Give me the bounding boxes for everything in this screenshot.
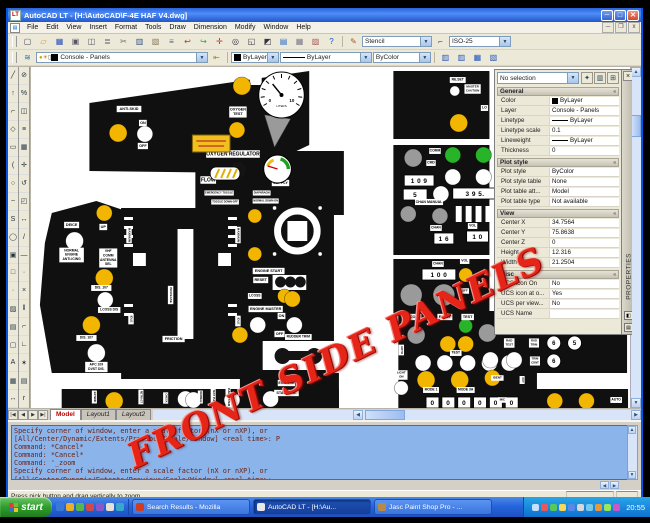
svg-text:TEST: TEST bbox=[505, 342, 513, 346]
save-icon[interactable]: ▦ bbox=[52, 35, 67, 49]
property-row: Center Y75.8638 bbox=[497, 228, 619, 238]
chevron-down-icon[interactable]: ▼ bbox=[420, 37, 431, 46]
svg-text:0: 0 bbox=[462, 400, 466, 407]
draw-spline-icon[interactable]: S bbox=[8, 211, 18, 229]
tab-layout1[interactable]: Layout1 bbox=[81, 409, 116, 420]
modify-fillet-icon[interactable]: ∟ bbox=[19, 336, 29, 354]
screen-edge bbox=[0, 517, 650, 523]
svg-text:CONT: CONT bbox=[531, 360, 539, 364]
svg-text:OFF: OFF bbox=[276, 332, 284, 336]
svg-text:5: 5 bbox=[413, 192, 417, 199]
svg-text:ANTI-SKID: ANTI-SKID bbox=[120, 107, 139, 111]
svg-text:AUTO: AUTO bbox=[611, 398, 621, 402]
window-title: AutoCAD LT - [H:\AutoCAD\F-4E HAF V4.dwg… bbox=[24, 11, 187, 20]
svg-text:1 0: 1 0 bbox=[472, 234, 482, 241]
modify-array-icon[interactable]: ▦ bbox=[19, 139, 29, 157]
section-plot-style[interactable]: Plot style« bbox=[497, 158, 619, 167]
markup-icon[interactable]: ▨ bbox=[308, 35, 323, 49]
dim-style-icon[interactable]: ⌐ bbox=[433, 35, 448, 49]
svg-text:OUT: OUT bbox=[521, 377, 525, 383]
svg-text:0: 0 bbox=[446, 400, 450, 407]
plot-preview-icon[interactable]: ◫ bbox=[84, 35, 99, 49]
svg-text:CHECK: CHECK bbox=[164, 393, 168, 402]
designcenter-icon[interactable]: ▦ bbox=[292, 35, 307, 49]
property-value[interactable]: No bbox=[549, 280, 619, 288]
svg-text:DIS. 107: DIS. 107 bbox=[95, 286, 108, 290]
svg-text:RETRACT: RETRACT bbox=[140, 391, 144, 404]
svg-text:FRICTION: FRICTION bbox=[165, 337, 183, 341]
tray-icon[interactable] bbox=[586, 504, 593, 511]
close-button[interactable]: ✕ bbox=[627, 10, 639, 21]
check-standards-icon[interactable]: ▥ bbox=[454, 51, 469, 65]
quick-select-icon[interactable]: ⊞ bbox=[607, 72, 619, 84]
copy-icon[interactable]: ▥ bbox=[132, 35, 147, 49]
modify-copy-icon[interactable]: % bbox=[19, 85, 29, 103]
svg-text:1 6: 1 6 bbox=[439, 236, 449, 243]
svg-text:ENGAGE: ENGAGE bbox=[278, 381, 295, 385]
svg-text:CAUTION: CAUTION bbox=[466, 88, 479, 92]
scroll-left-icon[interactable]: ◀ bbox=[353, 410, 363, 420]
match-properties-icon[interactable]: ≡ bbox=[164, 35, 179, 49]
doc-minimize-button[interactable]: ─ bbox=[602, 22, 614, 33]
menu-format[interactable]: Format bbox=[111, 24, 141, 31]
zoom-window-icon[interactable]: ◱ bbox=[244, 35, 259, 49]
property-row: Linetype scale0.1 bbox=[497, 126, 619, 136]
draw-rectangle-icon[interactable]: ▭ bbox=[8, 139, 18, 157]
cut-icon[interactable]: ✂ bbox=[116, 35, 131, 49]
modify-stretch-icon[interactable]: ↔ bbox=[19, 211, 29, 229]
draw-insert-block-icon[interactable]: ▣ bbox=[8, 247, 18, 265]
open-icon[interactable]: ▱ bbox=[36, 35, 51, 49]
quick-launch-icon[interactable] bbox=[116, 503, 124, 511]
property-row: LinetypeByLayer bbox=[497, 116, 619, 126]
new-icon[interactable]: ▢ bbox=[20, 35, 35, 49]
title-bar[interactable]: LT AutoCAD LT - [H:\AutoCAD\F-4E HAF V4.… bbox=[8, 8, 641, 22]
svg-text:IDENT: IDENT bbox=[493, 375, 502, 379]
task-icon bbox=[136, 503, 144, 511]
tab-next-button[interactable]: ▶ bbox=[28, 410, 38, 420]
plot-icon[interactable]: ▣ bbox=[68, 35, 83, 49]
redo-icon[interactable]: ↪ bbox=[196, 35, 211, 49]
menu-file[interactable]: File bbox=[23, 24, 42, 31]
modify-break-at-point-icon[interactable]: · bbox=[19, 264, 29, 282]
property-value[interactable]: 0 bbox=[549, 147, 619, 155]
modify-chamfer-icon[interactable]: ⌐ bbox=[19, 318, 29, 336]
chevron-down-icon[interactable]: ▼ bbox=[267, 53, 278, 62]
modify-move-icon[interactable]: ✛ bbox=[19, 157, 29, 175]
svg-text:LITERS: LITERS bbox=[276, 104, 286, 108]
svg-text:3 9 5.: 3 9 5. bbox=[466, 191, 485, 198]
draw-polygon-icon[interactable]: ◇ bbox=[8, 121, 18, 139]
draw-line-icon[interactable]: ╱ bbox=[8, 67, 18, 85]
property-value[interactable]: 75.8638 bbox=[549, 229, 619, 237]
svg-text:MODE 1: MODE 1 bbox=[425, 388, 438, 392]
svg-text:NORMAL DOWN-ON: NORMAL DOWN-ON bbox=[253, 198, 278, 202]
modify-explode-icon[interactable]: ✶ bbox=[19, 354, 29, 372]
modify-properties-icon[interactable]: ▤ bbox=[19, 372, 29, 390]
property-row: ColorByLayer bbox=[497, 96, 619, 106]
tray-icon[interactable] bbox=[604, 504, 611, 511]
svg-text:RUDDER TRIM: RUDDER TRIM bbox=[287, 335, 311, 339]
properties-palette: No selection ▼ ✦▥⊞ General«ColorByLayerL… bbox=[494, 69, 632, 335]
svg-text:TEST: TEST bbox=[463, 315, 473, 319]
scroll-down-icon[interactable]: ▼ bbox=[628, 471, 636, 479]
menu-tools[interactable]: Tools bbox=[141, 24, 165, 31]
property-row: UCS per view...No bbox=[497, 299, 619, 309]
draw-make-block-icon[interactable]: □ bbox=[8, 264, 18, 282]
svg-text:ENGINE START: ENGINE START bbox=[255, 269, 283, 273]
palette-titlebar[interactable]: × PROPERTIES ◧ ▤ bbox=[622, 69, 632, 335]
svg-text:TOGGLE DOWN-OFF: TOGGLE DOWN-OFF bbox=[212, 199, 238, 203]
property-value[interactable]: ByColor bbox=[549, 168, 619, 176]
scroll-up-icon[interactable]: ▲ bbox=[631, 67, 641, 77]
svg-text:LO: LO bbox=[482, 106, 487, 110]
svg-text:SEL: SEL bbox=[105, 262, 112, 266]
quick-launch-icon[interactable] bbox=[76, 503, 84, 511]
task-button[interactable]: Search Results - Mozilla bbox=[132, 499, 250, 515]
svg-text:ON: ON bbox=[399, 374, 403, 378]
standard-toolbar: ▢▱▦▣◫≣✂▥▧≡↩↪✛◎◱◩▤▦▨? ✎ Stencil▼ ⌐ ISO-25… bbox=[8, 34, 641, 50]
section-misc[interactable]: Misc« bbox=[497, 270, 619, 279]
command-window: Specify corner of window, enter a scale … bbox=[8, 420, 641, 490]
quick-launch-icon[interactable] bbox=[56, 503, 64, 511]
svg-text:VOL: VOL bbox=[469, 224, 476, 228]
draw-polyline-icon[interactable]: ⌐ bbox=[8, 103, 18, 121]
property-row: Height12.316 bbox=[497, 248, 619, 258]
property-row: UCS icon OnNo bbox=[497, 279, 619, 289]
draw-gradient-icon[interactable]: ▤ bbox=[8, 318, 18, 336]
menu-insert[interactable]: Insert bbox=[85, 24, 111, 31]
layer-combo[interactable]: ● ☀ ▯ Console - Panels ▼ bbox=[36, 52, 208, 63]
help-icon[interactable]: ? bbox=[324, 35, 339, 49]
tray-icon[interactable] bbox=[613, 504, 620, 511]
toolbar-grip[interactable] bbox=[12, 36, 17, 47]
task-button[interactable]: AutoCAD LT - [H:\Au... bbox=[253, 499, 371, 515]
command-history[interactable]: Specify corner of window, enter a scale … bbox=[11, 425, 628, 480]
svg-text:MODE 3A: MODE 3A bbox=[458, 388, 474, 392]
svg-text:ANTI-ICING: ANTI-ICING bbox=[62, 257, 81, 261]
standards-icon[interactable]: ▥ bbox=[438, 51, 453, 65]
property-value[interactable]: No bbox=[549, 300, 619, 308]
dim-style-combo[interactable]: ISO-25▼ bbox=[449, 36, 511, 47]
vscroll-thumb[interactable] bbox=[631, 115, 641, 137]
property-value[interactable]: 34.7564 bbox=[549, 219, 619, 227]
section-general[interactable]: General« bbox=[497, 87, 619, 96]
draw-hatch-icon[interactable]: ▨ bbox=[8, 300, 18, 318]
svg-text:CHAN MANUAL: CHAN MANUAL bbox=[416, 200, 444, 204]
property-value[interactable]: 0 bbox=[549, 239, 619, 247]
svg-text:DIS. 107: DIS. 107 bbox=[80, 336, 93, 340]
hscroll-thumb[interactable] bbox=[365, 410, 405, 420]
tab-last-button[interactable]: ▶| bbox=[38, 410, 48, 420]
svg-text:1 0 0: 1 0 0 bbox=[431, 272, 448, 279]
property-value[interactable]: None bbox=[549, 178, 619, 186]
select-objects-icon[interactable]: ▥ bbox=[594, 72, 606, 84]
windows-logo-icon bbox=[9, 503, 18, 512]
chevron-down-icon[interactable]: ▼ bbox=[360, 53, 371, 62]
svg-text:REPLY: REPLY bbox=[439, 315, 452, 319]
quick-launch-icon[interactable] bbox=[106, 503, 114, 511]
property-row: Plot table att...Model bbox=[497, 187, 619, 197]
svg-text:SEC: SEC bbox=[473, 281, 480, 285]
tab-first-button[interactable]: |◀ bbox=[8, 410, 18, 420]
task-icon bbox=[378, 503, 386, 511]
svg-text:CMD: CMD bbox=[427, 161, 435, 165]
toggle-pickadd-icon[interactable]: ✦ bbox=[581, 72, 593, 84]
publish-icon[interactable]: ≣ bbox=[100, 35, 115, 49]
menu-view[interactable]: View bbox=[62, 24, 85, 31]
svg-text:AUTO: AUTO bbox=[400, 346, 404, 355]
palette-autohide-icon[interactable]: ◧ bbox=[624, 311, 632, 320]
svg-text:RE.SET: RE.SET bbox=[452, 78, 465, 82]
draw-ray-icon[interactable]: ↑ bbox=[8, 85, 18, 103]
zoom-previous-icon[interactable]: ◩ bbox=[260, 35, 275, 49]
tab-prev-button[interactable]: ◀ bbox=[18, 410, 28, 420]
doc-restore-button[interactable]: ❐ bbox=[615, 22, 627, 33]
svg-text:INCREASE: INCREASE bbox=[169, 287, 173, 302]
text-style-combo[interactable]: Stencil▼ bbox=[362, 36, 432, 47]
layout-tabs-row: |◀ ◀ ▶ ▶| ModelLayout1Layout2 ◀ ▶ bbox=[8, 409, 641, 420]
dwg-compare-icon[interactable]: ▧ bbox=[486, 51, 501, 65]
modify-toolbar: ⊘%◫≡▦✛↺◰↔/—·×‖⌐∟✶▤r bbox=[19, 67, 30, 408]
scroll-right-icon[interactable]: ▶ bbox=[610, 481, 619, 489]
tray-icon[interactable] bbox=[595, 504, 602, 511]
chevron-down-icon[interactable]: ▼ bbox=[419, 53, 430, 62]
svg-text:0: 0 bbox=[494, 400, 498, 407]
svg-text:MAXIMUM: MAXIMUM bbox=[128, 228, 132, 243]
svg-text:CHAN: CHAN bbox=[433, 262, 443, 266]
property-row: LayerConsole - Panels bbox=[497, 106, 619, 116]
property-value[interactable]: Yes bbox=[549, 290, 619, 298]
palette-properties-icon[interactable]: ▤ bbox=[624, 323, 632, 332]
draw-ellipse-icon[interactable]: ◯ bbox=[8, 229, 18, 247]
menu-window[interactable]: Window bbox=[259, 24, 292, 31]
property-row: Plot styleByColor bbox=[497, 167, 619, 177]
doc-close-button[interactable]: x bbox=[628, 22, 640, 33]
draw-arc-icon[interactable]: ( bbox=[8, 157, 18, 175]
minimize-button[interactable]: ─ bbox=[601, 10, 613, 21]
property-value[interactable]: 21.2504 bbox=[549, 259, 619, 267]
layers-toolbar: ≋ ● ☀ ▯ Console - Panels ▼ ⇤ ByLayer ▼ B… bbox=[8, 50, 641, 66]
svg-text:EXTEND: EXTEND bbox=[93, 392, 97, 403]
draw-dim-icon[interactable]: ↔ bbox=[8, 390, 18, 408]
draw-toolbar: ╱↑⌐◇▭(○~S◯▣□·▨▤▢A▦↔ bbox=[8, 67, 19, 408]
property-row: Plot style tableNone bbox=[497, 177, 619, 187]
svg-text:UP: UP bbox=[101, 225, 107, 229]
command-scrollbar[interactable]: ▲ ▼ bbox=[627, 425, 638, 480]
svg-text:TEST PUMP: TEST PUMP bbox=[212, 390, 216, 405]
menu-draw[interactable]: Draw bbox=[165, 24, 189, 31]
modify-rotate-icon[interactable]: ↺ bbox=[19, 175, 29, 193]
menu-edit[interactable]: Edit bbox=[42, 24, 62, 31]
property-value[interactable]: 0.1 bbox=[549, 127, 619, 135]
property-row: Center Z0 bbox=[497, 238, 619, 248]
lineweight-combo[interactable]: ByLayer ▼ bbox=[280, 52, 372, 63]
task-icon bbox=[257, 503, 265, 511]
layer-translate-icon[interactable]: ▦ bbox=[470, 51, 485, 65]
property-row: UCS Name bbox=[497, 309, 619, 319]
svg-text:0: 0 bbox=[430, 400, 434, 407]
layer-manager-icon[interactable]: ≋ bbox=[20, 51, 35, 65]
svg-text:OFF: OFF bbox=[462, 288, 468, 292]
property-value[interactable]: Model bbox=[549, 188, 619, 196]
svg-text:ON: ON bbox=[279, 314, 285, 318]
quick-launch-icon[interactable] bbox=[86, 503, 94, 511]
horizontal-scrollbar[interactable]: ◀ ▶ bbox=[153, 410, 641, 420]
property-row: Center X34.7564 bbox=[497, 218, 619, 228]
toolbar-grip[interactable] bbox=[12, 52, 17, 63]
start-button[interactable]: start bbox=[0, 497, 52, 517]
svg-text:TEST: TEST bbox=[233, 112, 243, 116]
tab-layout2[interactable]: Layout2 bbox=[116, 409, 151, 420]
selection-combo[interactable]: No selection ▼ bbox=[497, 72, 579, 84]
svg-text:CHAN: CHAN bbox=[431, 226, 441, 230]
modify-join-icon[interactable]: ‖ bbox=[19, 300, 29, 318]
tray-icon[interactable] bbox=[532, 504, 539, 511]
svg-text:FUEL SYSTEM: FUEL SYSTEM bbox=[227, 388, 231, 406]
draw-mtext-icon[interactable]: A bbox=[8, 354, 18, 372]
section-view[interactable]: View« bbox=[497, 209, 619, 218]
pan-realtime-icon[interactable]: ✛ bbox=[212, 35, 227, 49]
tray-icon[interactable] bbox=[568, 504, 575, 511]
text-style-icon[interactable]: ✎ bbox=[346, 35, 361, 49]
chevron-down-icon[interactable]: ▼ bbox=[196, 53, 207, 62]
tray-icon[interactable] bbox=[550, 504, 557, 511]
svg-text:NORMAL: NORMAL bbox=[199, 391, 203, 403]
property-value[interactable]: ByLayer bbox=[549, 97, 619, 105]
svg-text:OXYGEN: OXYGEN bbox=[230, 107, 246, 111]
draw-point-icon[interactable]: · bbox=[8, 282, 18, 300]
svg-text:1 0 9: 1 0 9 bbox=[411, 178, 428, 185]
property-row: LineweightByLayer bbox=[497, 136, 619, 146]
svg-text:STAB AUG.: STAB AUG. bbox=[276, 391, 296, 395]
draw-circle-icon[interactable]: ○ bbox=[8, 175, 18, 193]
palette-close-icon[interactable]: × bbox=[623, 71, 632, 81]
layer-color-swatch bbox=[51, 54, 58, 61]
color-combo[interactable]: ByLayer ▼ bbox=[231, 52, 279, 63]
lineweight-glyph bbox=[283, 57, 305, 58]
svg-text:LCOSS: LCOSS bbox=[249, 294, 261, 298]
workspace: ╱↑⌐◇▭(○~S◯▣□·▨▤▢A▦↔ ⊘%◫≡▦✛↺◰↔/—·×‖⌐∟✶▤r … bbox=[8, 66, 641, 420]
svg-text:ENGINE MASTER: ENGINE MASTER bbox=[250, 307, 282, 311]
scroll-down-icon[interactable]: ▼ bbox=[631, 398, 641, 408]
svg-text:MAXIMUM: MAXIMUM bbox=[236, 228, 240, 243]
taskbar: start Search Results - MozillaAutoCAD LT… bbox=[0, 497, 650, 517]
system-tray: 20:55 bbox=[523, 497, 650, 517]
modify-break-icon[interactable]: × bbox=[19, 282, 29, 300]
modify-match-icon[interactable]: r bbox=[19, 390, 29, 408]
tray-icon[interactable] bbox=[577, 504, 584, 511]
layer-previous-icon[interactable]: ⇤ bbox=[209, 51, 224, 65]
svg-text:DIAPHRAGM: DIAPHRAGM bbox=[254, 190, 270, 194]
property-value[interactable]: Console - Panels bbox=[549, 107, 619, 115]
svg-text:CODE: CODE bbox=[410, 315, 421, 319]
zoom-realtime-icon[interactable]: ◎ bbox=[228, 35, 243, 49]
scroll-right-icon[interactable]: ▶ bbox=[631, 410, 641, 420]
chevron-down-icon[interactable]: ▼ bbox=[499, 37, 510, 46]
scroll-left-icon[interactable]: ◀ bbox=[600, 481, 609, 489]
svg-text:LCOSS DIS: LCOSS DIS bbox=[100, 308, 119, 312]
palette-title: PROPERTIES bbox=[625, 253, 632, 300]
svg-text:DEICE: DEICE bbox=[66, 223, 78, 227]
maximize-button[interactable]: □ bbox=[614, 10, 626, 21]
draw-region-icon[interactable]: ▢ bbox=[8, 336, 18, 354]
property-row: Plot table typeNot available bbox=[497, 197, 619, 207]
svg-text:0: 0 bbox=[478, 400, 482, 407]
scroll-up-icon[interactable]: ▲ bbox=[628, 426, 636, 434]
draw-table-icon[interactable]: ▦ bbox=[8, 372, 18, 390]
properties-icon[interactable]: ▤ bbox=[276, 35, 291, 49]
property-value[interactable]: ByLayer bbox=[549, 137, 619, 145]
quick-launch-icon[interactable] bbox=[66, 503, 74, 511]
drawing-canvas[interactable]: 556561 0 953 9 5.1 61 01 0 0000000ANTI-S… bbox=[31, 67, 632, 408]
modify-scale-icon[interactable]: ◰ bbox=[19, 193, 29, 211]
svg-text:VOL: VOL bbox=[461, 259, 468, 263]
menu-help[interactable]: Help bbox=[292, 24, 314, 31]
svg-text:TEST: TEST bbox=[451, 351, 461, 355]
menu-bar: ▤ FileEditViewInsertFormatToolsDrawDimen… bbox=[8, 22, 641, 34]
app-icon: LT bbox=[10, 10, 21, 21]
modify-trim-icon[interactable]: / bbox=[19, 229, 29, 247]
property-row: Width21.2504 bbox=[497, 258, 619, 268]
property-value[interactable]: Not available bbox=[549, 198, 619, 206]
property-row: Thickness0 bbox=[497, 146, 619, 156]
color-swatch bbox=[234, 54, 241, 61]
svg-text:TRIM: TRIM bbox=[531, 342, 538, 346]
property-row: UCS icon at o...Yes bbox=[497, 289, 619, 299]
svg-text:0: 0 bbox=[510, 400, 514, 407]
undo-icon[interactable]: ↩ bbox=[180, 35, 195, 49]
modify-erase-icon[interactable]: ⊘ bbox=[19, 67, 29, 85]
plotstyle-combo[interactable]: ByColor ▼ bbox=[373, 52, 431, 63]
document-icon[interactable]: ▤ bbox=[10, 23, 20, 33]
tray-icon[interactable] bbox=[559, 504, 566, 511]
svg-text:IDLE: IDLE bbox=[130, 316, 134, 323]
modify-offset-icon[interactable]: ≡ bbox=[19, 121, 29, 139]
svg-text:COMM: COMM bbox=[430, 149, 441, 153]
svg-text:RESET: RESET bbox=[254, 278, 267, 282]
tray-icon[interactable] bbox=[541, 504, 548, 511]
svg-text:10: 10 bbox=[289, 98, 294, 103]
modify-extend-icon[interactable]: — bbox=[19, 247, 29, 265]
task-button[interactable]: Jasc Paint Shop Pro - ... bbox=[374, 499, 492, 515]
property-value[interactable]: 12.316 bbox=[549, 249, 619, 257]
modify-mirror-icon[interactable]: ◫ bbox=[19, 103, 29, 121]
menu-modify[interactable]: Modify bbox=[231, 24, 260, 31]
svg-text:MIC: MIC bbox=[500, 397, 506, 401]
paste-icon[interactable]: ▧ bbox=[148, 35, 163, 49]
svg-text:ON: ON bbox=[140, 121, 146, 125]
quick-launch-icon[interactable] bbox=[96, 503, 104, 511]
tab-model[interactable]: Model bbox=[50, 409, 81, 420]
chevron-down-icon[interactable]: ▼ bbox=[567, 73, 578, 83]
svg-text:EMERGENCY TOGGLE: EMERGENCY TOGGLE bbox=[205, 190, 233, 194]
quick-launch bbox=[52, 499, 129, 515]
clock: 20:55 bbox=[626, 503, 645, 512]
svg-text:IDLE: IDLE bbox=[236, 318, 240, 325]
menu-dimension[interactable]: Dimension bbox=[190, 24, 231, 31]
property-value[interactable] bbox=[549, 310, 619, 318]
property-value[interactable]: ByLayer bbox=[549, 117, 619, 125]
draw-revcloud-icon[interactable]: ~ bbox=[8, 193, 18, 211]
svg-text:DVST DIS.: DVST DIS. bbox=[88, 367, 104, 371]
svg-text:OFF: OFF bbox=[139, 144, 147, 148]
autocad-window: LT AutoCAD LT - [H:\AutoCAD\F-4E HAF V4.… bbox=[6, 8, 643, 497]
